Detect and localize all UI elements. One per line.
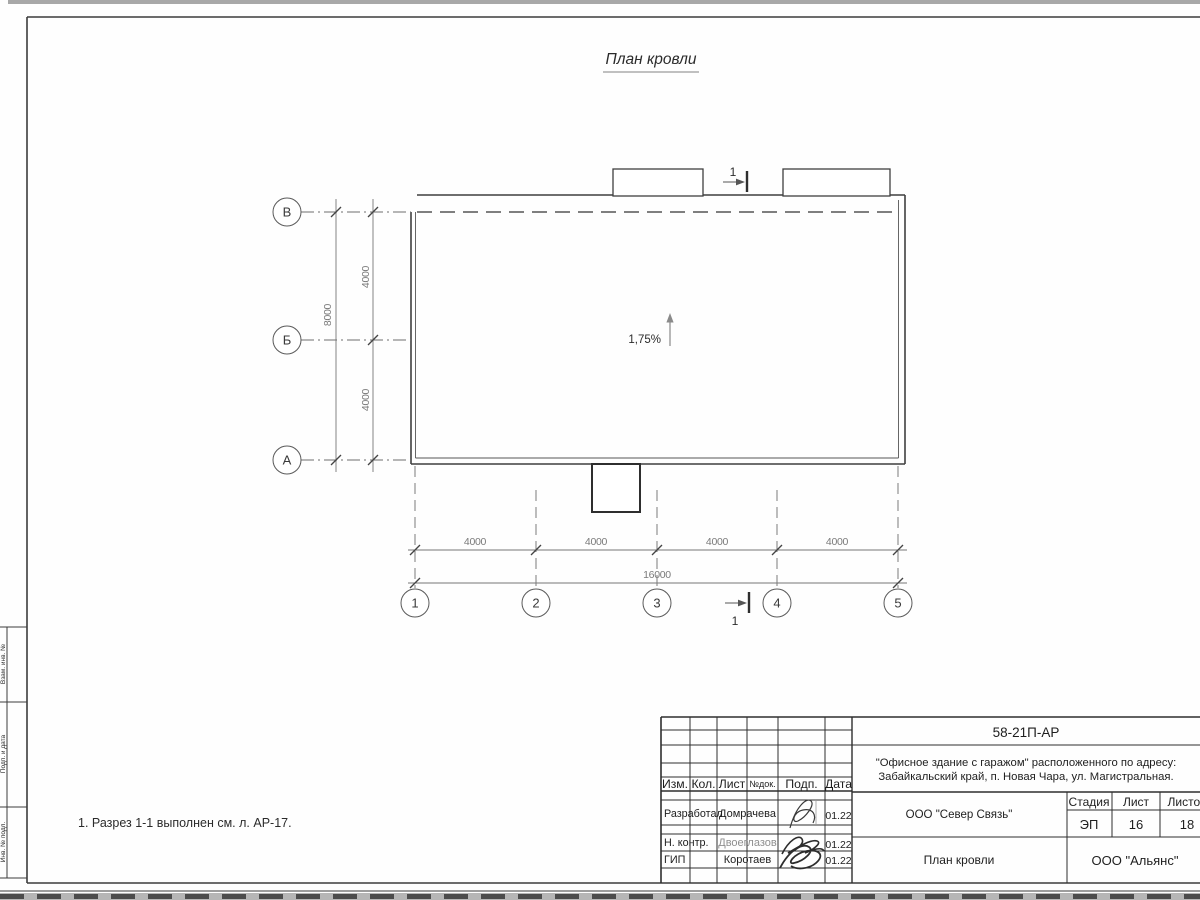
note-text: 1. Разрез 1-1 выполнен см. л. АР-17.	[78, 816, 292, 830]
dim-v-2: 4000	[360, 388, 372, 411]
company-name: ООО "Альянс"	[1092, 853, 1179, 868]
axis-bubbles-rows: В Б А	[273, 198, 301, 474]
margin-label-vzam: Взам. инв. №	[0, 644, 7, 684]
roof-protrusion-top-left	[613, 169, 703, 196]
margin-label-podp: Подп. и дата	[0, 734, 7, 773]
signature-developer	[790, 800, 815, 828]
section-label-top: 1	[730, 165, 737, 179]
list-label: Лист	[1123, 795, 1150, 809]
section-label-bottom: 1	[732, 614, 739, 628]
roof-plan-canvas: Взам. инв. № Подп. и дата Инв. № подл. П…	[0, 0, 1200, 900]
dim-lines-vertical	[336, 199, 373, 472]
roof-protrusion-top-right	[783, 169, 890, 196]
row-ncontrol-date: 01.22	[825, 839, 851, 851]
slope-arrow	[666, 313, 673, 346]
doc-number: 58-21П-АР	[993, 725, 1060, 740]
axis-col-1: 1	[411, 596, 418, 611]
sheet-title-cell: План кровли	[924, 853, 995, 867]
row-ncontrol-role: Н. контр.	[664, 837, 709, 849]
stage-value: ЭП	[1080, 817, 1099, 832]
col-header-podp: Подп.	[785, 777, 817, 791]
row-developer-date: 01.22	[825, 810, 851, 822]
row-gip-date: 01.22	[825, 855, 851, 867]
roof-outline-outer	[411, 195, 905, 464]
dim-v-total: 8000	[322, 303, 334, 326]
dim-h-total: 16000	[643, 569, 671, 581]
axis-col-3: 3	[653, 596, 660, 611]
page-title: План кровли	[606, 51, 697, 68]
row-gip-role: ГИП	[664, 854, 685, 866]
contractor-name: ООО "Север Связь"	[906, 809, 1013, 821]
dim-ticks-vertical	[331, 207, 378, 465]
listov-label: Листов	[1168, 795, 1200, 809]
row-developer-role: Разработал	[664, 808, 723, 820]
object-address-line1: "Офисное здание с гаражом" расположенног…	[876, 757, 1177, 769]
row-axis-lines	[301, 212, 411, 460]
roof-outline-inner	[416, 200, 899, 458]
dim-h-1: 4000	[464, 536, 487, 548]
axis-col-4: 4	[773, 596, 780, 611]
col-header-data: Дата	[825, 777, 852, 791]
listov-value: 18	[1180, 817, 1194, 832]
stage-label: Стадия	[1069, 795, 1110, 809]
axis-row-a: А	[283, 453, 292, 468]
axis-row-b: Б	[283, 333, 292, 348]
col-header-kol: Кол.	[691, 777, 715, 791]
axis-col-2: 2	[532, 596, 539, 611]
roof-protrusion-bottom	[592, 464, 640, 512]
drawing-sheet: Взам. инв. № Подп. и дата Инв. № подл. П…	[0, 0, 1200, 900]
row-gip-name: Коротаев	[724, 854, 772, 866]
slope-label: 1,75%	[628, 334, 661, 346]
axis-col-5: 5	[894, 596, 901, 611]
dim-h-2: 4000	[585, 536, 608, 548]
dim-h-4: 4000	[826, 536, 849, 548]
scan-bottom-edge	[0, 891, 1200, 900]
sheet-frame	[27, 17, 1200, 883]
col-header-list: Лист	[719, 777, 746, 791]
axis-bubbles-cols: 1 2 3 4 5	[401, 589, 912, 617]
list-value: 16	[1129, 817, 1143, 832]
col-header-doc: №док.	[749, 779, 775, 789]
dim-v-1: 4000	[360, 265, 372, 288]
object-address-line2: Забайкальский край, п. Новая Чара, ул. М…	[878, 771, 1173, 783]
dim-ticks-horizontal	[410, 545, 903, 588]
col-header-izm: Изм.	[662, 777, 688, 791]
section-mark-bottom	[725, 592, 749, 613]
dim-h-3: 4000	[706, 536, 729, 548]
margin-label-inv: Инв. № подл.	[0, 822, 7, 863]
row-ncontrol-name: Двоеглазов	[718, 837, 777, 849]
row-developer-name: Домрачева	[719, 808, 777, 820]
axis-row-v: В	[283, 205, 292, 220]
scan-top-edge	[8, 0, 1200, 4]
